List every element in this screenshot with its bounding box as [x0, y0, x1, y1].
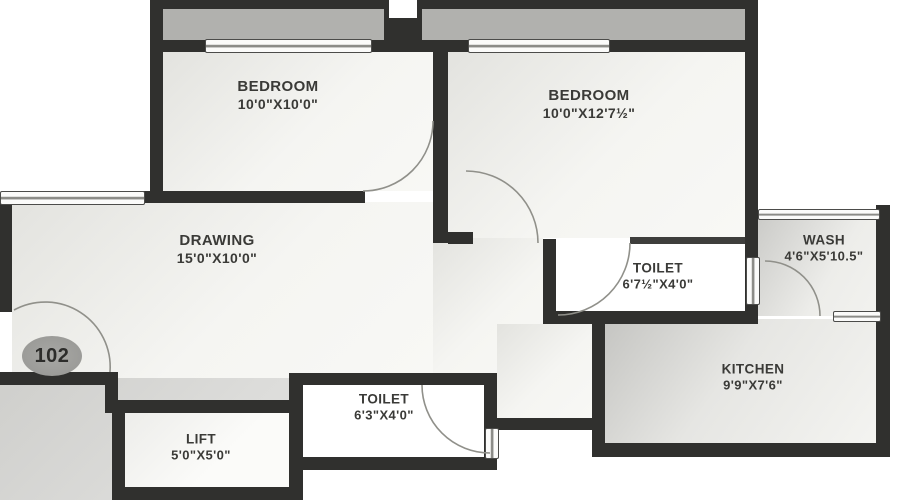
room-name: TOILET [623, 260, 694, 276]
room-dimensions: 4'6"X5'10.5" [785, 248, 864, 263]
balcony-divider-notch [389, 0, 417, 18]
window-wash-top [758, 209, 880, 220]
window-toilet2 [485, 428, 499, 459]
wall-toilet2-bottom [290, 457, 497, 470]
wall-left-upper [150, 0, 163, 202]
window-bedroom1 [205, 39, 372, 53]
room-name: WASH [785, 232, 864, 248]
room-label-bedroom-1: BEDROOM 10'0"X10'0" [237, 78, 318, 112]
room-dimensions: 10'0"X10'0" [237, 96, 318, 113]
room-dimensions: 6'3"X4'0" [354, 407, 414, 422]
wall-right-lower [876, 205, 890, 457]
unit-number: 102 [35, 345, 70, 368]
room-dimensions: 5'0"X5'0" [171, 447, 231, 462]
wall-lift-left [112, 400, 125, 500]
room-label-lift: LIFT 5'0"X5'0" [171, 431, 231, 462]
balcony-strip [150, 9, 758, 40]
wall-kitchen-bottom [592, 443, 890, 457]
room-name: LIFT [171, 431, 231, 447]
room-name: TOILET [354, 391, 414, 407]
room-label-wash: WASH 4'6"X5'10.5" [785, 232, 864, 263]
room-label-toilet-1: TOILET 6'7½"X4'0" [623, 260, 694, 291]
wall-left-outer [0, 200, 12, 312]
wall-toilet1-bottom [543, 311, 758, 324]
room-area-bedroom-1 [163, 51, 433, 191]
wall-bedroom2-bottom-stub [448, 232, 473, 244]
passage-area-2 [497, 324, 592, 420]
room-name: BEDROOM [543, 87, 635, 105]
wall-kitchen-left [592, 324, 605, 457]
room-name: BEDROOM [237, 78, 318, 96]
window-drawing [0, 191, 145, 205]
wall-toilet2-top [290, 373, 497, 385]
wall-toilet1-top-partition [630, 237, 745, 244]
room-dimensions: 10'0"X12'7½" [543, 105, 635, 122]
wall-lift-bottom [112, 487, 303, 500]
window-toilet1 [746, 257, 760, 305]
room-label-drawing: DRAWING 15'0"X10'0" [177, 232, 257, 266]
wall-between-bedrooms [433, 40, 448, 243]
wall-bedroom1-bottom [143, 191, 365, 203]
window-wash-bottom [833, 311, 881, 322]
wall-lift-top [105, 400, 302, 413]
floor-plan: BEDROOM 10'0"X10'0" BEDROOM 10'0"X12'7½"… [0, 0, 900, 500]
room-area-bedroom-2 [448, 51, 745, 238]
floorplan-screenshot: { "page": { "type": "apartment-floor-pla… [0, 0, 900, 500]
room-name: KITCHEN [722, 361, 785, 377]
window-bedroom2 [468, 39, 610, 53]
room-name: DRAWING [177, 232, 257, 250]
room-area-wash [758, 216, 878, 316]
room-label-toilet-2: TOILET 6'3"X4'0" [354, 391, 414, 422]
wall-passage-bottom [484, 418, 594, 430]
room-dimensions: 6'7½"X4'0" [623, 276, 694, 291]
wall-lift-right [289, 373, 303, 500]
room-dimensions: 15'0"X10'0" [177, 250, 257, 267]
unit-number-badge: 102 [22, 336, 82, 376]
room-dimensions: 9'9"X7'6" [722, 377, 785, 392]
wall-balcony-top [150, 0, 758, 9]
room-label-kitchen: KITCHEN 9'9"X7'6" [722, 361, 785, 392]
room-label-bedroom-2: BEDROOM 10'0"X12'7½" [543, 87, 635, 121]
